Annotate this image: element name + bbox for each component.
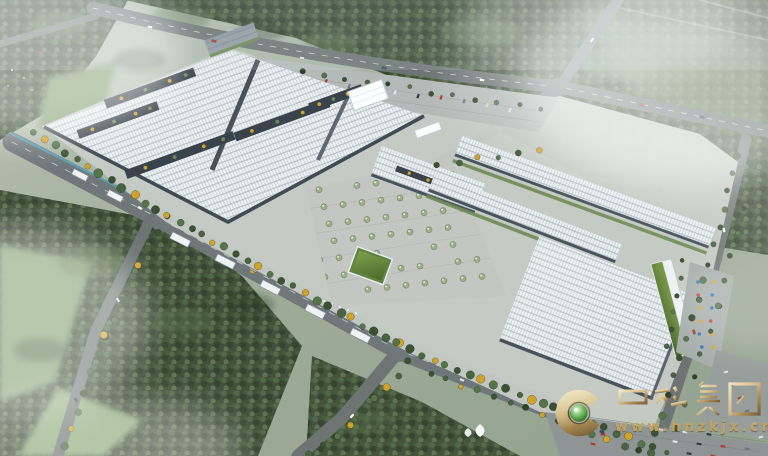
- campus-illustration: [0, 0, 768, 456]
- aerial-render: 中科集团: [0, 0, 768, 456]
- sky-tint: [0, 0, 768, 70]
